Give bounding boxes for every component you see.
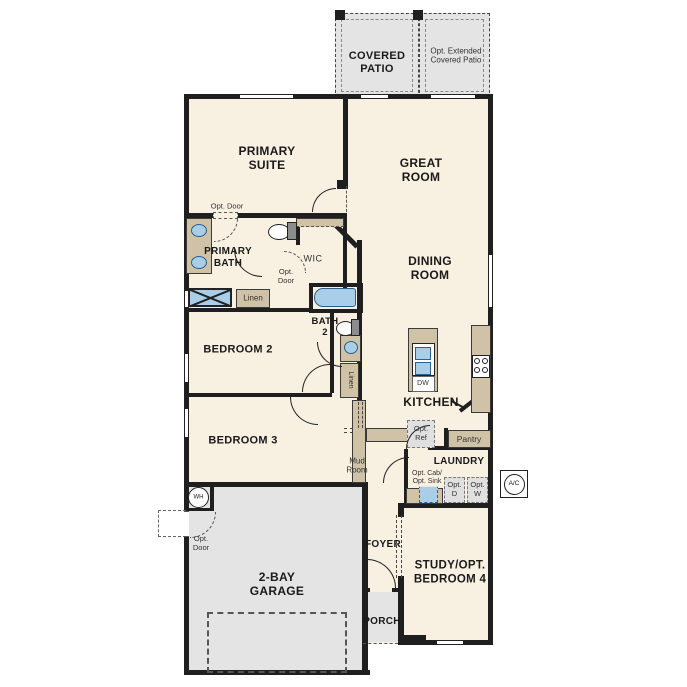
label-linen-hall: Linen [346, 371, 354, 388]
patio-post [413, 10, 423, 20]
toilet-tank [351, 319, 360, 336]
kitchen-sink-icon [415, 362, 431, 375]
bathtub-icon [314, 288, 356, 307]
opt-wall-dash [344, 432, 353, 433]
room-label-covered-patio: COVERED PATIO [349, 50, 406, 76]
room-label-opt-extended-patio: Opt. Extended Covered Patio [430, 47, 481, 66]
room-label-bath2: BATH 2 [312, 316, 339, 338]
room-label-primary-suite: PRIMARY SUITE [239, 144, 296, 172]
floor-plan: COVERED PATIO Opt. Extended Covered Pati… [0, 0, 687, 687]
window [488, 255, 493, 307]
label-opt-door-suite: Opt. Door [211, 203, 244, 212]
opt-wall-dash [344, 428, 353, 429]
room-label-study: STUDY/OPT. BEDROOM 4 [414, 559, 486, 586]
kitchen-sink-icon [415, 347, 431, 360]
label-pantry: Pantry [457, 434, 482, 444]
opt-wall-dash [401, 515, 402, 578]
window [240, 94, 293, 99]
opt-wall-dash [362, 402, 363, 428]
opt-wall-dash [358, 402, 359, 428]
label-opt-door-garage: Opt. Door [193, 535, 209, 553]
label-opt-cab-sink: Opt. Cab/ Opt. Sink [412, 470, 442, 487]
room-label-kitchen: KITCHEN [403, 395, 458, 409]
room-label-foyer: FOYER [365, 539, 401, 551]
sink-icon [191, 224, 207, 237]
room-label-great-room: GREAT ROOM [400, 156, 443, 184]
label-ac: A/C [509, 480, 520, 488]
opt-door-garage-box [158, 510, 186, 537]
toilet-tank [287, 222, 297, 240]
label-linen: Linen [243, 293, 263, 302]
room-label-wic: WIC [304, 254, 323, 265]
wall [309, 309, 363, 313]
window [184, 409, 189, 437]
window [437, 640, 463, 645]
burner-icon [474, 358, 480, 364]
burner-icon [482, 367, 488, 373]
window [184, 354, 189, 382]
sink-icon [344, 341, 358, 354]
opening-dash [346, 186, 347, 212]
wall [309, 283, 363, 287]
label-opt-washer: Opt. W [470, 481, 484, 499]
burner-icon [482, 358, 488, 364]
wall [398, 635, 426, 645]
entry-door-leaf [365, 559, 368, 589]
room-label-garage: 2-BAY GARAGE [250, 570, 304, 598]
label-wh: WH [194, 494, 204, 501]
wall [184, 308, 309, 312]
room-label-laundry: LAUNDRY [434, 456, 485, 468]
label-opt-door-wic: Opt. Door [278, 268, 294, 286]
room-label-bedroom3: BEDROOM 3 [208, 435, 277, 448]
room-label-mud-room: Mud Room [346, 457, 367, 476]
porch-edge-dash [363, 643, 398, 644]
patio-door [361, 94, 388, 99]
patio-post [335, 10, 345, 20]
wall [398, 576, 404, 592]
burner-icon [474, 367, 480, 373]
wall [343, 94, 348, 182]
wall [357, 283, 363, 313]
room-label-primary-bath: PRIMARY BATH [204, 246, 252, 270]
room-label-porch: PORCH [363, 616, 401, 628]
label-dishwasher: DW [417, 380, 429, 388]
wall [186, 508, 214, 511]
patio-door [431, 94, 475, 99]
wall [184, 94, 189, 675]
wic-shelf [296, 218, 344, 227]
label-opt-dryer: Opt. D [447, 481, 461, 499]
room-label-bedroom2: BEDROOM 2 [203, 344, 272, 357]
opt-door-gap [184, 511, 189, 537]
room-label-dining: DINING ROOM [408, 254, 452, 282]
label-opt-ref: Opt. Ref [414, 425, 428, 443]
laundry-sink-icon [419, 485, 438, 503]
garage-door-dash [207, 612, 347, 673]
